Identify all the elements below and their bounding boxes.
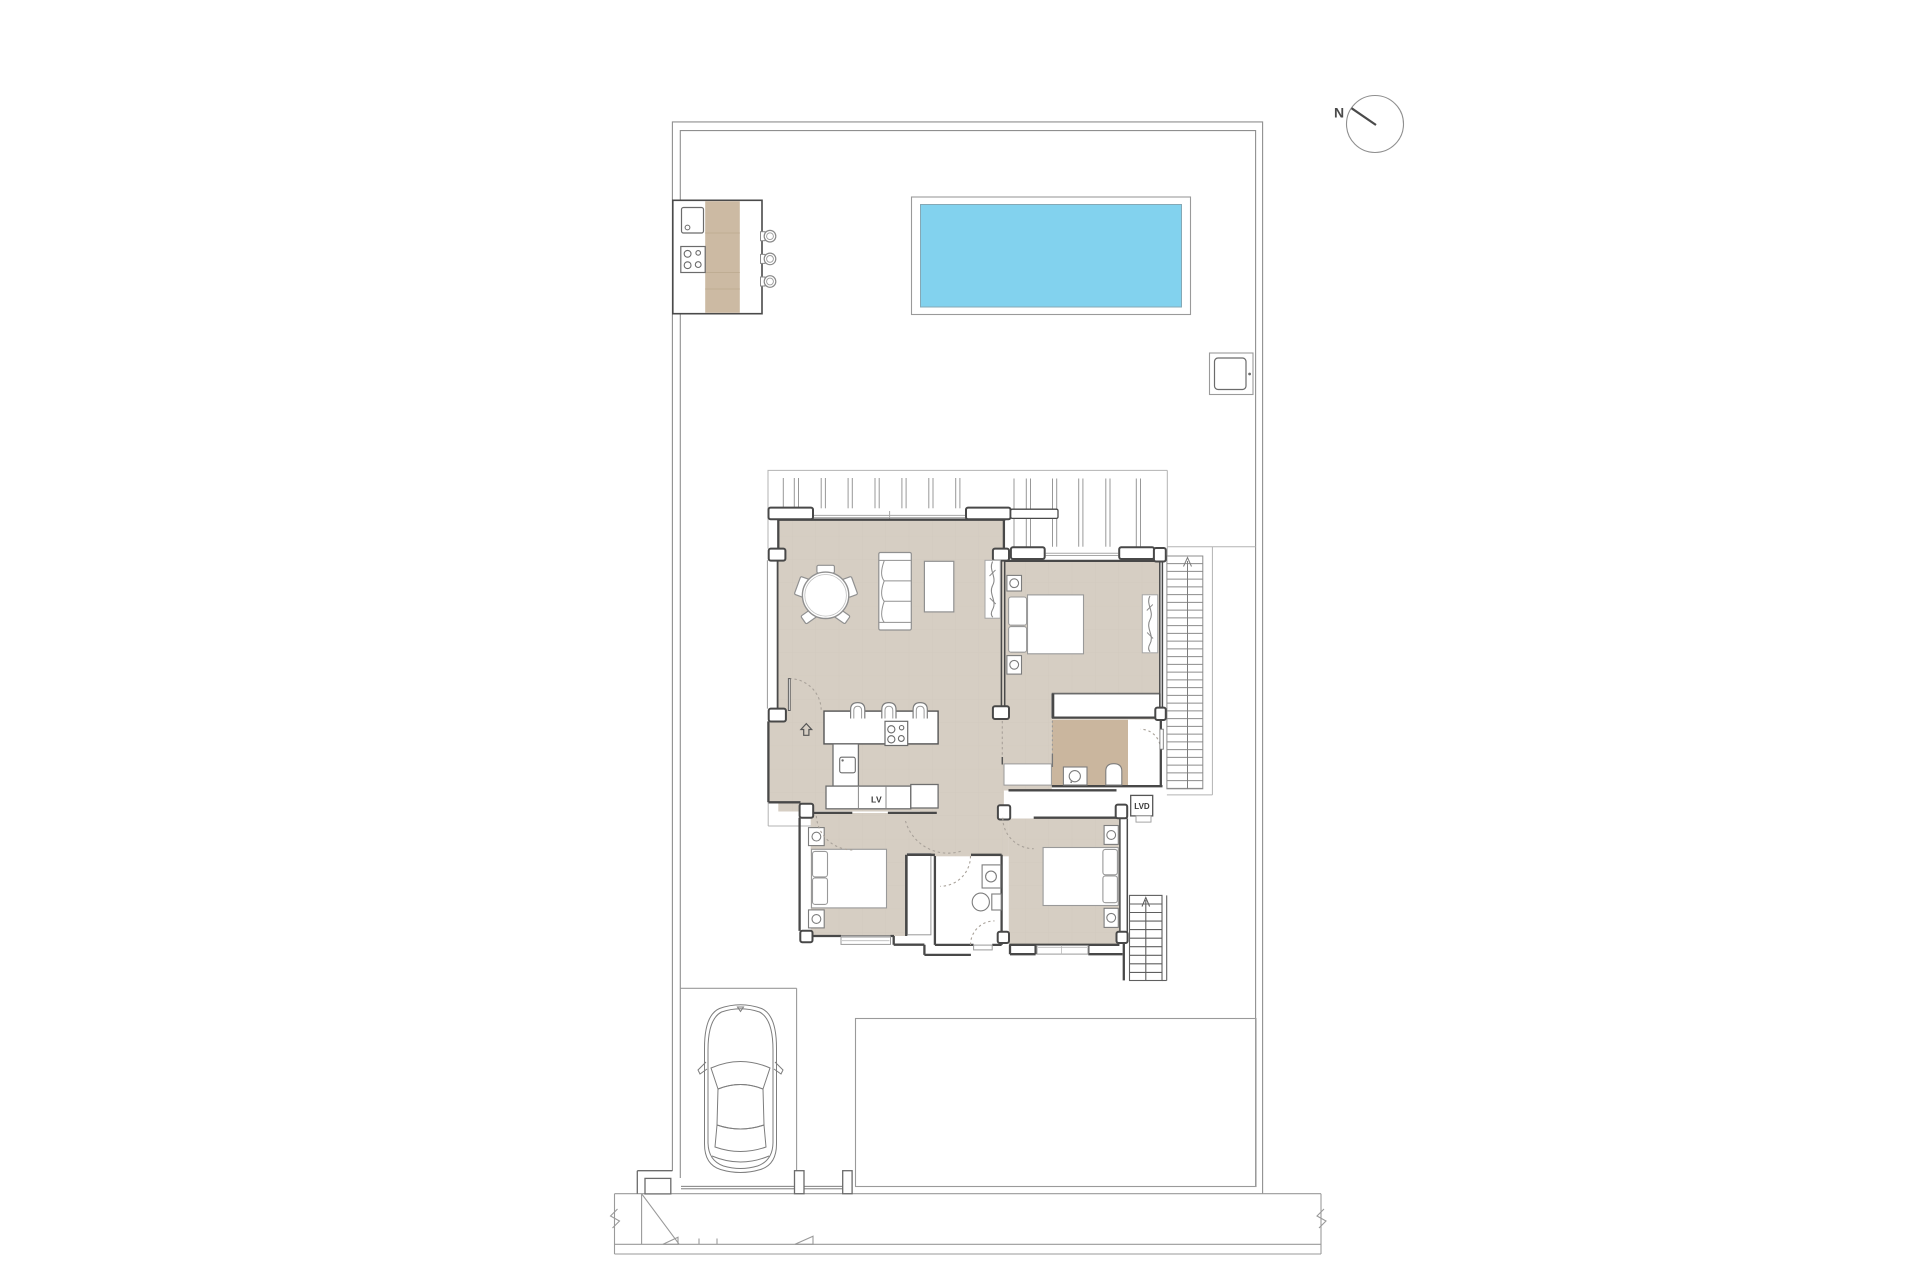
- svg-text:LVD: LVD: [1134, 802, 1150, 811]
- svg-text:N: N: [1334, 105, 1344, 121]
- svg-text:LV: LV: [871, 794, 882, 804]
